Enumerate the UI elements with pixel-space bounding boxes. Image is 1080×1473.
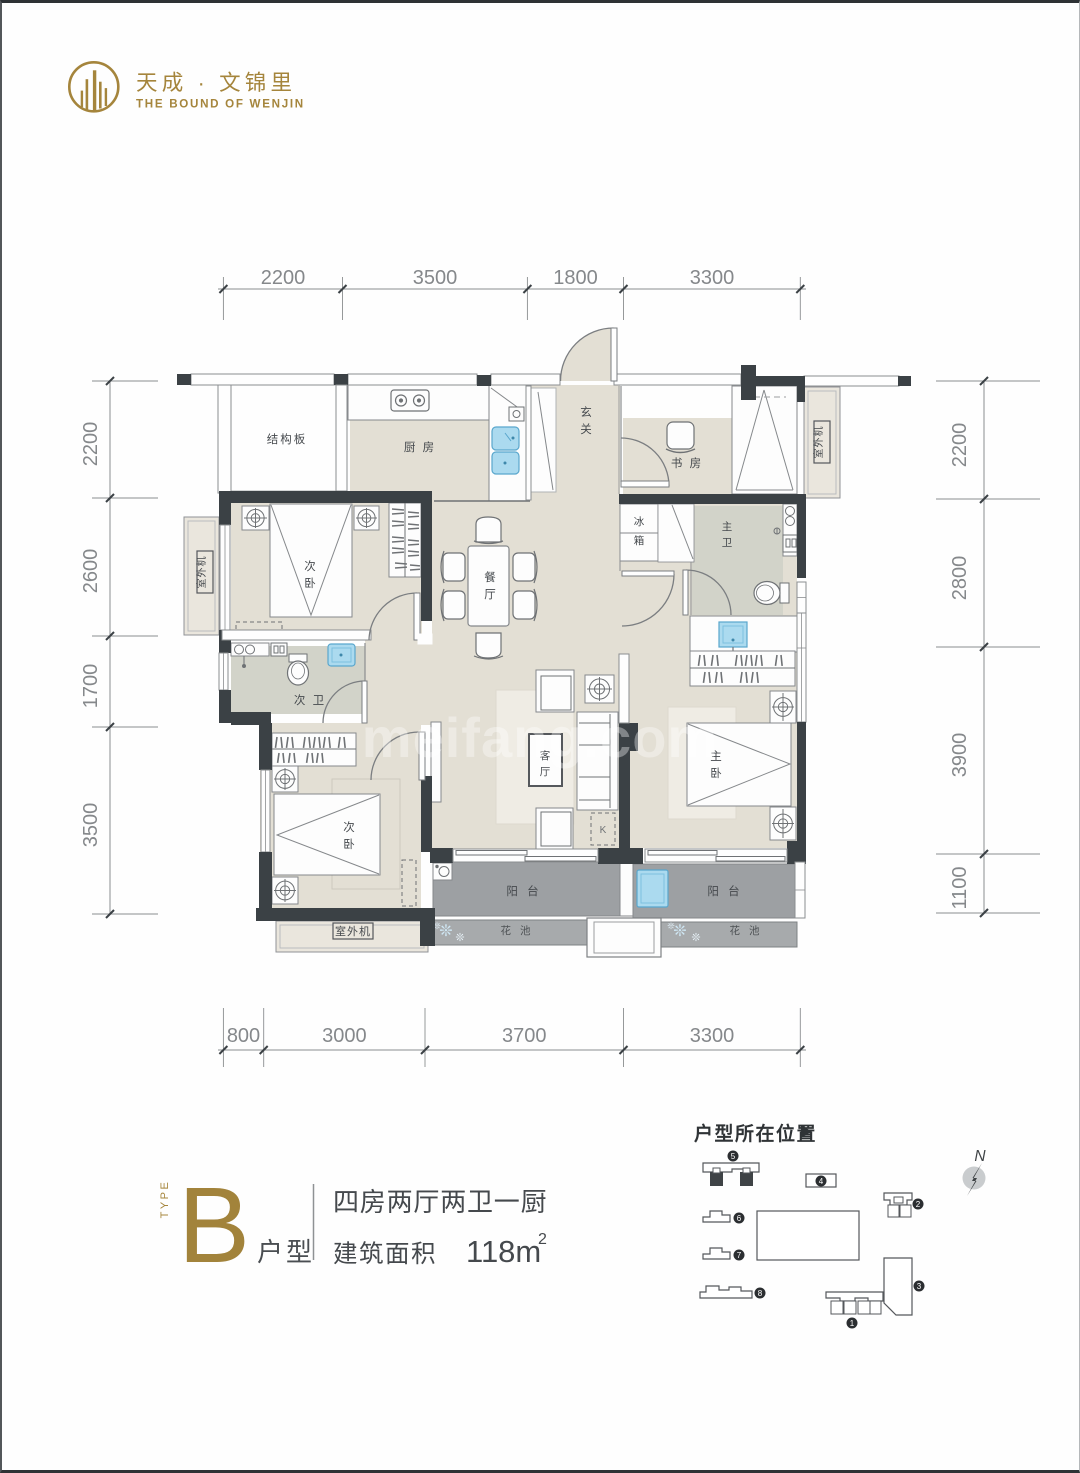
svg-text:阳 台: 阳 台 xyxy=(506,884,541,898)
svg-text:8: 8 xyxy=(758,1289,763,1298)
svg-text:THE BOUND OF WENJIN: THE BOUND OF WENJIN xyxy=(136,98,305,111)
svg-text:❊: ❊ xyxy=(691,932,700,944)
svg-text:阳 台: 阳 台 xyxy=(707,884,742,898)
svg-text:3500: 3500 xyxy=(80,803,102,848)
svg-text:四房两厅两卫一厨: 四房两厅两卫一厨 xyxy=(333,1187,547,1217)
svg-text:3700: 3700 xyxy=(502,1025,547,1047)
svg-text:1800: 1800 xyxy=(553,267,598,289)
svg-text:建筑面积: 建筑面积 xyxy=(333,1240,437,1268)
svg-text:2: 2 xyxy=(916,1200,921,1209)
svg-text:3: 3 xyxy=(917,1282,922,1291)
svg-text:餐: 餐 xyxy=(484,570,496,584)
svg-text:3300: 3300 xyxy=(690,1025,735,1047)
svg-text:3300: 3300 xyxy=(690,267,735,289)
svg-text:2200: 2200 xyxy=(80,422,102,467)
svg-text:meifang.com: meifang.com xyxy=(362,706,718,769)
svg-text:2600: 2600 xyxy=(80,549,102,594)
svg-text:3900: 3900 xyxy=(949,733,971,778)
svg-text:3500: 3500 xyxy=(413,267,458,289)
svg-text:800: 800 xyxy=(227,1025,260,1047)
svg-text:5: 5 xyxy=(731,1152,736,1161)
svg-text:卧: 卧 xyxy=(343,838,355,851)
svg-text:厅: 厅 xyxy=(484,589,496,601)
svg-text:天成 · 文锦里: 天成 · 文锦里 xyxy=(136,71,296,95)
svg-text:花 池: 花 池 xyxy=(730,924,763,937)
svg-text:❊: ❊ xyxy=(455,932,464,944)
svg-text:2: 2 xyxy=(538,1231,547,1248)
svg-text:7: 7 xyxy=(737,1251,742,1260)
svg-text:1100: 1100 xyxy=(949,866,971,909)
svg-text:箱: 箱 xyxy=(634,534,645,547)
svg-text:B: B xyxy=(178,1164,250,1285)
svg-text:卫: 卫 xyxy=(722,537,733,549)
svg-text:1700: 1700 xyxy=(80,664,102,709)
svg-text:户型所在位置: 户型所在位置 xyxy=(694,1122,817,1145)
svg-text:关: 关 xyxy=(580,422,592,436)
svg-text:冰: 冰 xyxy=(634,515,645,528)
svg-text:6: 6 xyxy=(737,1214,742,1223)
svg-text:N: N xyxy=(974,1148,986,1165)
svg-text:玄: 玄 xyxy=(580,405,592,419)
svg-text:次 卫: 次 卫 xyxy=(294,693,326,707)
svg-text:4: 4 xyxy=(819,1177,824,1186)
svg-text:花 池: 花 池 xyxy=(501,924,534,937)
svg-text:2200: 2200 xyxy=(949,423,971,468)
svg-text:次: 次 xyxy=(343,820,355,834)
svg-text:户型: 户型 xyxy=(257,1237,315,1267)
svg-text:厨 房: 厨 房 xyxy=(404,441,436,454)
svg-text:结构板: 结构板 xyxy=(267,432,308,446)
svg-text:❊: ❊ xyxy=(673,923,686,940)
svg-text:室外机: 室外机 xyxy=(812,426,825,459)
svg-text:次: 次 xyxy=(304,559,316,573)
svg-text:❊: ❊ xyxy=(667,921,675,931)
svg-text:1: 1 xyxy=(850,1319,855,1328)
svg-text:主: 主 xyxy=(722,521,733,533)
svg-text:书 房: 书 房 xyxy=(671,457,703,470)
svg-text:118m: 118m xyxy=(466,1234,541,1269)
svg-text:❊: ❊ xyxy=(439,923,452,940)
svg-text:室外机: 室外机 xyxy=(195,556,208,589)
svg-text:TYPE: TYPE xyxy=(159,1180,171,1219)
svg-text:2800: 2800 xyxy=(949,556,971,601)
svg-text:3000: 3000 xyxy=(322,1025,367,1047)
svg-text:2200: 2200 xyxy=(261,267,306,289)
svg-text:K: K xyxy=(600,825,607,836)
svg-text:卧: 卧 xyxy=(304,577,316,590)
svg-text:室外机: 室外机 xyxy=(335,924,371,938)
